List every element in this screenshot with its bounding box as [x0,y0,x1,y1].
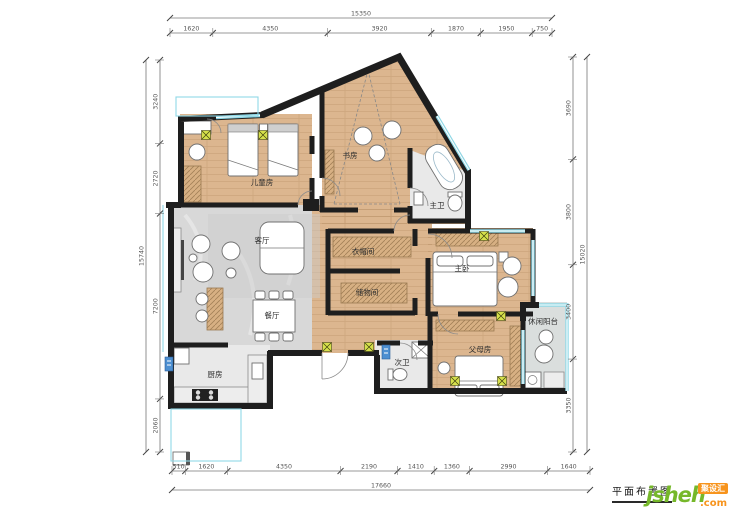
washing-machine [524,372,541,388]
toilet [448,195,462,211]
kids-bed-2-headboard [268,124,298,132]
dim-value: 17660 [371,483,391,490]
burner [209,395,213,399]
burner [196,395,200,399]
room-label-second-bath: 次卫 [395,357,410,367]
dim-value: 3920 [371,26,387,33]
parents-stool [438,362,450,374]
brand-badge: 聚设汇 [698,483,728,494]
dim-value: 3350 [566,398,573,414]
room-label-children: 儿童房 [251,177,274,187]
balcony-cabinet [544,372,564,388]
column [303,199,319,211]
kitchen-sink [252,363,263,379]
dim-value: 2060 [153,417,160,433]
dim-value: 2990 [500,464,516,471]
brand-logo: jsheh .com 聚设汇 [646,483,728,515]
sink-icon [382,345,390,359]
dim-value: 1360 [444,464,460,471]
dim-value: 3690 [566,100,573,116]
master-chair-1 [503,257,521,275]
kids-chair [189,144,205,160]
dining-chair [255,291,265,299]
parents-wardrobe [510,326,521,386]
brand-site-name: jsheh [646,485,705,506]
room-label-master-bath: 主卫 [430,200,445,210]
tv-cabinet [173,228,181,292]
tv-screen [181,240,184,280]
accent-chair-1 [192,235,210,253]
room-label-balcony: 休闲阳台 [528,316,558,326]
dim-value: 3400 [566,304,573,320]
room-label-study: 书房 [343,150,358,160]
dim-value: 3240 [153,94,160,110]
dim-value: 7200 [153,298,160,314]
dining-chair [283,333,293,341]
dining-chair [255,333,265,341]
accent-chair-2 [193,262,213,282]
bar-stool-1 [196,293,208,305]
kids-bed-1-headboard [228,124,258,132]
ac-unit-side [186,452,190,465]
dim-value: 1950 [498,26,514,33]
burner [209,390,213,394]
dining-chair [269,333,279,341]
light-symbol [323,343,332,352]
light-symbol [451,377,460,386]
fridge [174,348,189,364]
dim-value: 15020 [580,244,587,264]
master-pillow [467,256,493,266]
washbasin [414,192,423,205]
room-label-storage: 储物间 [356,287,379,297]
light-symbol [480,232,489,241]
dim-value: 15350 [351,11,371,18]
light-symbol [365,343,374,352]
light-symbol [497,312,506,321]
dim-value: 2720 [153,170,160,186]
dim-value: 4350 [276,464,292,471]
toilet-tank-2 [388,369,393,380]
room-label-kitchen: 厨房 [208,369,223,379]
study-round-table [369,145,385,161]
electric-panel-icon [165,357,173,371]
toilet-2 [393,369,407,381]
dim-value: 15740 [139,246,146,266]
brand-site-tld: .com [700,498,727,509]
dim-value: 1410 [408,464,424,471]
bar-stool-2 [196,310,208,322]
master-chair-2 [498,277,518,297]
room-label-dining: 餐厅 [265,311,280,320]
dim-value: 510 [173,464,185,471]
stove [192,389,218,401]
light-symbol [498,377,507,386]
study-bookshelf [325,150,334,194]
coffee-table [222,242,240,260]
dim-value: 750 [536,26,548,33]
floor-plan-page: 儿童房 书房 主卫 客厅 衣帽间 主卧 储物间 餐厅 休闲阳台 厨房 次卫 父母… [0,0,730,516]
room-label-parents: 父母房 [469,344,492,354]
burner [196,390,200,394]
room-label-living: 客厅 [255,235,270,245]
light-symbol [202,131,211,140]
kids-wardrobe [183,166,201,202]
side-table [226,268,236,278]
study-armchair-2 [383,121,401,139]
dim-value: 1620 [183,26,199,33]
balcony-chair [535,345,553,363]
dim-value: 1870 [448,26,464,33]
bar-island [207,288,223,330]
floor-plan-canvas: 儿童房 书房 主卫 客厅 衣帽间 主卧 储物间 餐厅 休闲阳台 厨房 次卫 父母… [0,0,730,516]
dining-chair [269,291,279,299]
room-label-master: 主卧 [455,263,470,273]
lamp-table [189,254,197,262]
dim-value: 4350 [262,26,278,33]
study-armchair-1 [354,127,372,145]
dim-value: 2190 [361,464,377,471]
dim-value: 1640 [561,464,577,471]
dim-value: 1620 [198,464,214,471]
dining-chair [283,291,293,299]
light-symbol [259,131,268,140]
dim-value: 3800 [566,204,573,220]
entry-door [322,353,348,379]
room-label-cloakroom: 衣帽间 [352,246,375,256]
balcony-table [539,330,553,344]
